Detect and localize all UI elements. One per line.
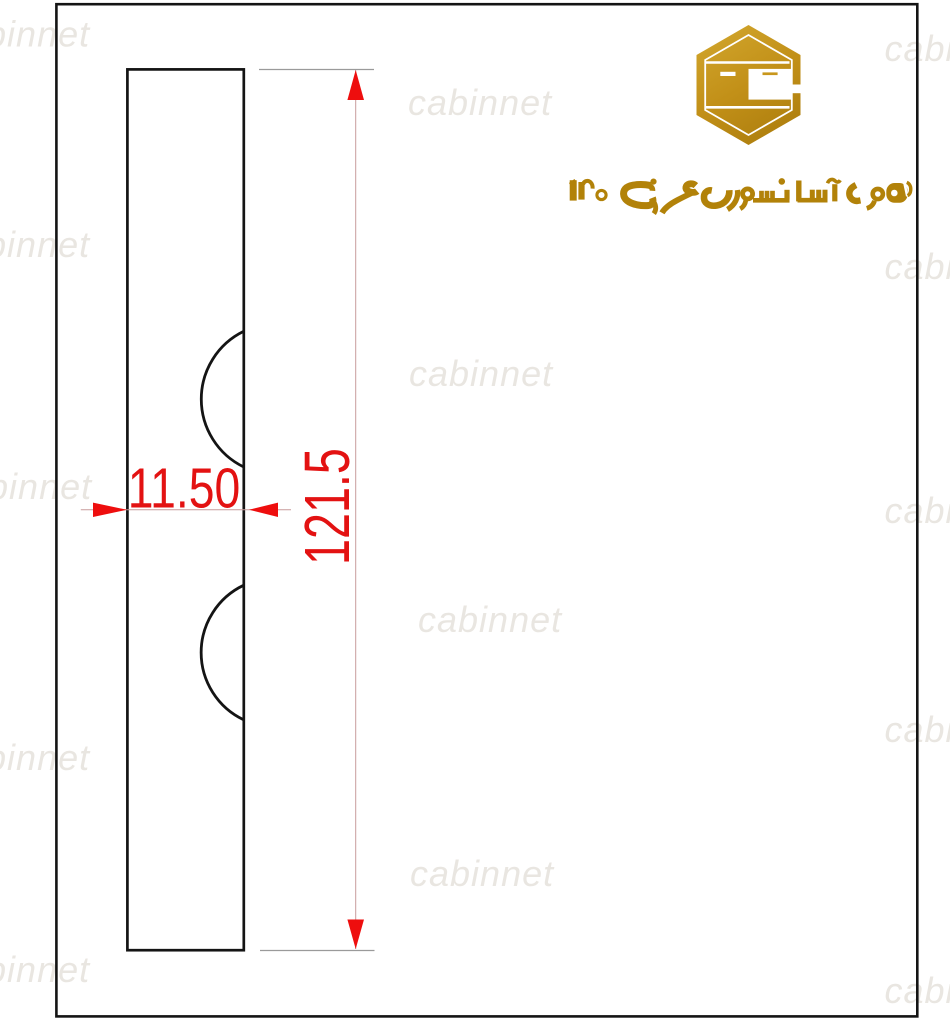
svg-text:121.5: 121.5 — [291, 448, 363, 565]
svg-text:cabinnet: cabinnet — [408, 82, 553, 123]
svg-text:11.50: 11.50 — [128, 456, 240, 519]
svg-text:cabinnet: cabinnet — [0, 949, 91, 990]
svg-text:cabinnet: cabinnet — [409, 353, 554, 394]
svg-text:cabinnet: cabinnet — [0, 737, 91, 778]
svg-text:cabinnet: cabinnet — [0, 224, 91, 265]
svg-text:cabinnet: cabinnet — [0, 14, 91, 55]
svg-text:cabinnet: cabinnet — [0, 466, 93, 507]
svg-text:cabinnet: cabinnet — [410, 853, 555, 894]
svg-text:cabinnet: cabinnet — [418, 599, 563, 640]
